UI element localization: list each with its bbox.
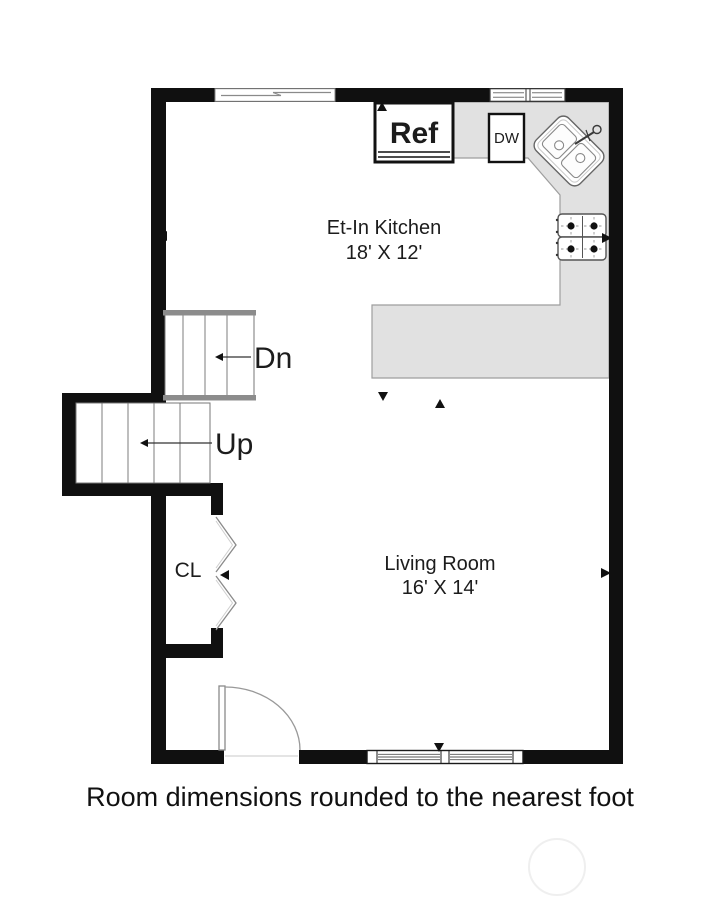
- dishwasher: DW: [489, 114, 524, 162]
- kitchen-dims: 18' X 12': [346, 242, 423, 264]
- watermark-circle: [528, 838, 586, 896]
- marker-left-closet: [220, 570, 229, 580]
- wall-bumpout-left: [62, 393, 76, 496]
- stairs-down-label: Dn: [254, 342, 292, 375]
- wall-right: [609, 88, 623, 764]
- window-top-right: [490, 89, 565, 102]
- window-bottom: [367, 751, 523, 764]
- wall-closet-bottom: [151, 644, 223, 658]
- refrigerator: Ref: [375, 103, 453, 162]
- stairs-down: Dn: [163, 310, 292, 401]
- dishwasher-label: DW: [494, 130, 520, 147]
- living-room-dims: 16' X 14': [402, 577, 479, 599]
- dimension-markers: [157, 102, 612, 752]
- wall-left-lower: [151, 483, 166, 764]
- entry-door: [219, 686, 300, 756]
- closet-label: CL: [175, 559, 202, 582]
- marker-down-peninsula: [378, 392, 388, 401]
- wall-left-upper: [151, 88, 166, 397]
- stairs-up: Up: [76, 403, 253, 483]
- kitchen-name: Et-In Kitchen: [327, 217, 442, 239]
- floorplan-page: Ref DW: [0, 0, 720, 897]
- wall-closet-top: [62, 483, 223, 496]
- stairs-up-label: Up: [215, 428, 253, 461]
- living-room-name: Living Room: [384, 553, 495, 575]
- wall-closet-right-upper: [211, 483, 223, 515]
- stove-icon: [556, 214, 606, 260]
- marker-up-peninsula: [435, 399, 445, 408]
- wall-bumpout-top: [62, 393, 166, 403]
- caption-text: Room dimensions rounded to the nearest f…: [0, 782, 720, 813]
- floorplan-drawing: Ref DW: [0, 0, 720, 770]
- window-top-left: [215, 89, 335, 102]
- refrigerator-label: Ref: [390, 117, 439, 150]
- room-labels: Et-In Kitchen 18' X 12' Living Room 16' …: [327, 217, 496, 599]
